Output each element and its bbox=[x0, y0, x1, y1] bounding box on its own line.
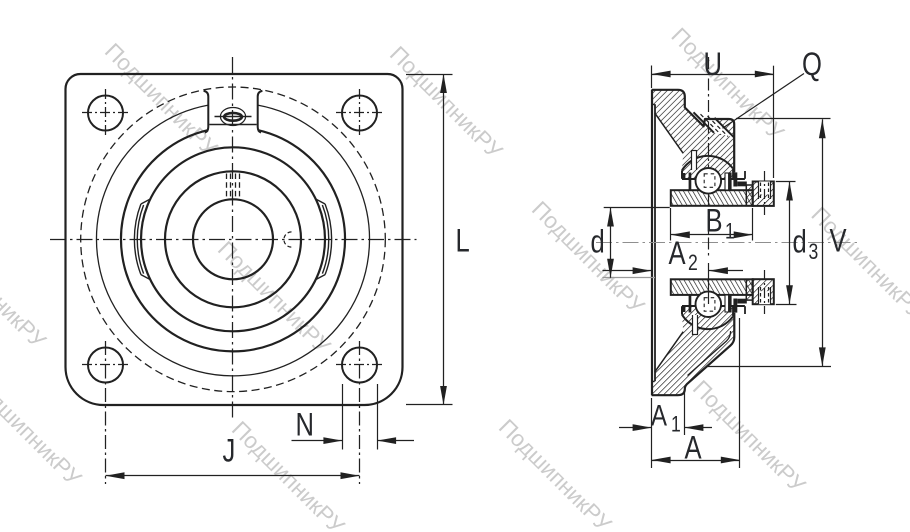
svg-text:d: d bbox=[591, 225, 605, 260]
svg-text:A: A bbox=[685, 431, 703, 466]
svg-text:d: d bbox=[793, 225, 807, 260]
svg-text:J: J bbox=[223, 434, 236, 469]
svg-text:A: A bbox=[651, 398, 668, 432]
svg-text:2: 2 bbox=[688, 251, 698, 275]
svg-text:N: N bbox=[296, 408, 314, 443]
svg-text:U: U bbox=[704, 47, 722, 82]
svg-text:A: A bbox=[669, 236, 687, 271]
svg-text:Q: Q bbox=[802, 47, 822, 82]
svg-text:1: 1 bbox=[725, 220, 735, 244]
svg-text:V: V bbox=[830, 224, 848, 259]
svg-text:1: 1 bbox=[671, 413, 681, 437]
svg-text:B: B bbox=[706, 204, 723, 239]
svg-text:3: 3 bbox=[809, 240, 819, 264]
svg-text:L: L bbox=[456, 224, 470, 259]
